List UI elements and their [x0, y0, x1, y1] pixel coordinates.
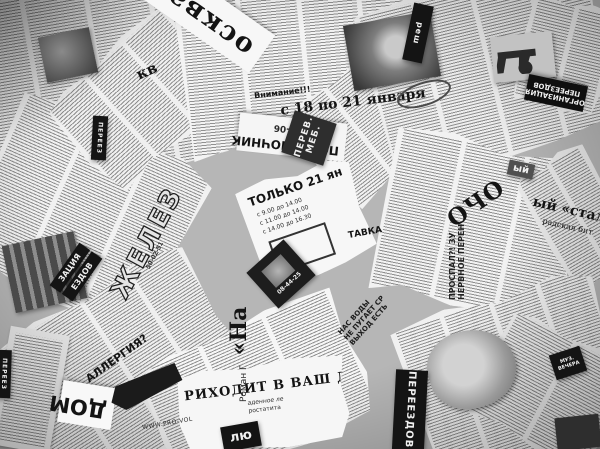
vechera-label: МУЗ. ВЕЧЕРА	[551, 352, 585, 373]
roman-label: Роман Г	[239, 365, 249, 402]
lyu-label: лю	[229, 427, 253, 446]
prospal-label: ПРОСПАЛ?! ЗУ	[448, 224, 457, 300]
yi-label: ый	[512, 162, 530, 176]
pereez-mid-label: ПЕРЕЕЗ	[95, 122, 104, 154]
vertical-headline: ПРОСПАЛ?! ЗУ НЕРВНОЕ ПЕРЕН	[448, 224, 466, 300]
book-title-fragment: Роман Г «На	[226, 307, 252, 402]
revolver-icon	[494, 37, 551, 76]
slogan-block: НАС ВОДЫ НЕ ПУГАЕТ СР ВЫХОД ЕСТЬ	[336, 289, 392, 347]
headline-dom: ДОМ	[48, 390, 109, 423]
pereez-tower-block: ПЕРЕЕЗ	[91, 116, 108, 161]
pereez-left-label: ПЕРЕЕЗ	[0, 358, 8, 390]
nervnoe-label: НЕРВНОЕ ПЕРЕН	[457, 224, 466, 300]
na-quote-label: «На	[226, 307, 252, 356]
pereezdov-vert-label: ПЕРЕЕЗДОВ	[402, 371, 417, 449]
resh-label: реш	[411, 21, 425, 45]
newspaper-collage-photo: осква кв ПЕРЕЕЗ Внимание!!! с 18 по 21 я…	[0, 0, 600, 449]
revolver-photo	[490, 31, 556, 83]
pereezdov-vertical-block: ПЕРЕЕЗДОВ	[392, 369, 428, 449]
dom-scrap: ДОМ	[57, 380, 117, 430]
corner-logo-block	[554, 414, 600, 449]
pereez-left-block: ПЕРЕЕЗ	[0, 350, 12, 398]
